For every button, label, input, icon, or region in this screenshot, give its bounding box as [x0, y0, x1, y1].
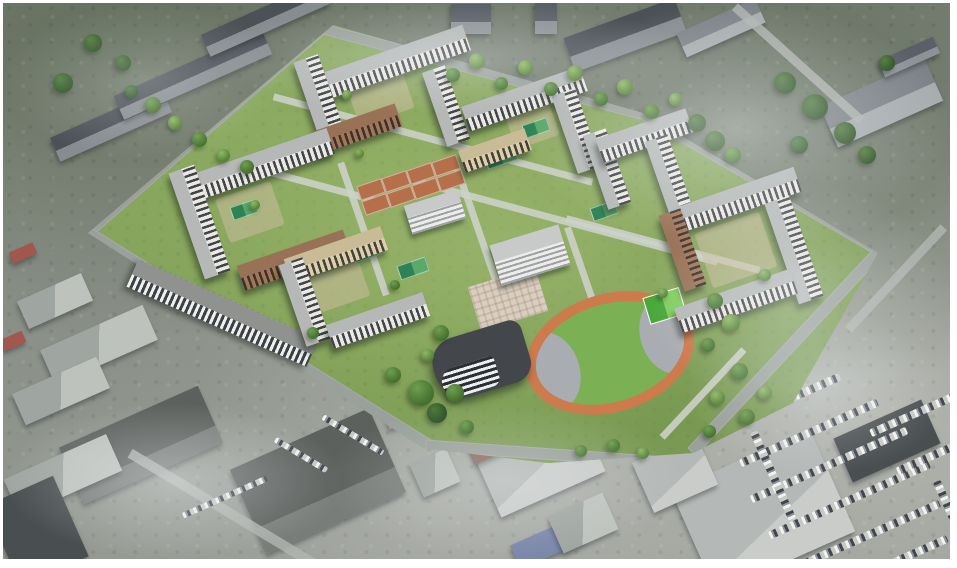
aerial-masterplan-figure: [0, 0, 957, 568]
haze-patch: [524, 3, 950, 253]
haze-patch: [3, 3, 287, 159]
haze-layer: [3, 3, 950, 559]
aerial-photo-area: [3, 3, 950, 559]
haze-patch: [685, 309, 950, 476]
haze-patch: [3, 403, 344, 559]
haze-patch: [647, 181, 950, 415]
haze-patch: [211, 3, 703, 114]
haze-patch: [325, 403, 685, 559]
